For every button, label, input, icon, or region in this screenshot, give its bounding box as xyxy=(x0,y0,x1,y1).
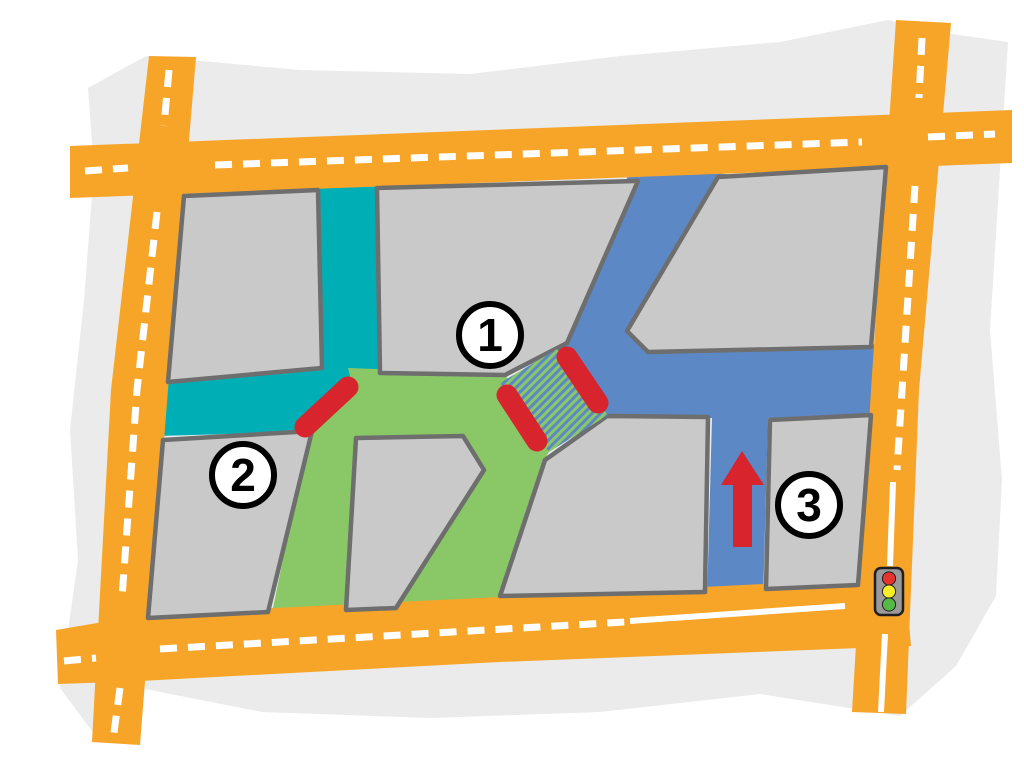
street-map-diagram: 1 2 3 xyxy=(0,0,1024,772)
map-canvas: 1 2 3 xyxy=(0,0,1024,772)
traffic-light-green xyxy=(882,598,895,611)
badge-3-label: 3 xyxy=(796,479,822,531)
badge-1-label: 1 xyxy=(477,309,503,361)
city-block-top-left xyxy=(168,190,322,382)
badge-3: 3 xyxy=(778,474,840,536)
lane-line-top xyxy=(928,134,995,137)
badge-2: 2 xyxy=(212,444,274,506)
stop-line-right xyxy=(881,634,885,712)
traffic-light-yellow xyxy=(882,585,895,598)
stop-line-right xyxy=(890,482,893,566)
badge-2-label: 2 xyxy=(230,449,256,501)
badge-1: 1 xyxy=(459,304,521,366)
traffic-light-icon xyxy=(875,568,903,615)
traffic-light-red xyxy=(882,572,895,585)
